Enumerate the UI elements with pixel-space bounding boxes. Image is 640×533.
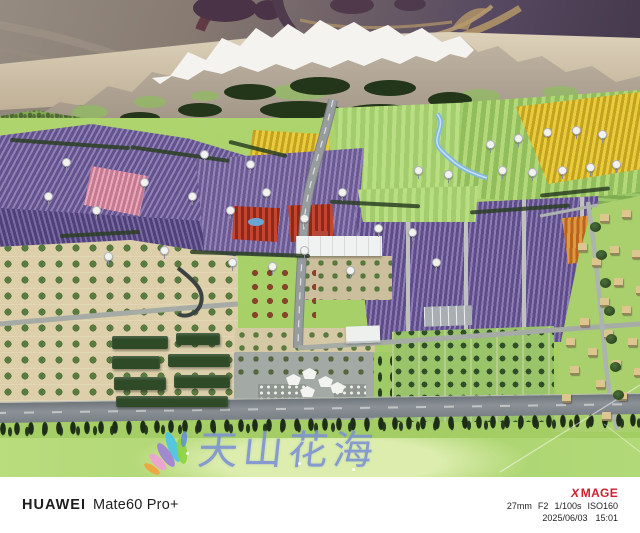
beehive-box (588, 348, 597, 357)
parasol-marker-icon (104, 252, 113, 261)
parasol-marker-icon (268, 262, 277, 271)
xmage-x-icon: X (570, 486, 581, 501)
beehive-box (578, 243, 587, 252)
shutter-speed: 1/100s (554, 501, 581, 511)
parasol-marker-icon (226, 206, 235, 215)
device-brand: HUAWEI (22, 497, 86, 513)
hedge-block (112, 356, 160, 369)
parasol-marker-icon (200, 150, 209, 159)
parasol-marker-icon (558, 166, 567, 175)
parasol-marker-icon (140, 178, 149, 187)
parasol-marker-icon (598, 130, 607, 139)
parasol-marker-icon (514, 134, 523, 143)
beehive-box (562, 394, 571, 403)
hedge-block (174, 375, 230, 388)
parasol-marker-icon (414, 166, 423, 175)
parasol-marker-icon (188, 192, 197, 201)
parasol-marker-icon (432, 258, 441, 267)
hedge-block (116, 396, 228, 407)
parasol-marker-icon (528, 168, 537, 177)
parasol-marker-icon (586, 163, 595, 172)
roadside-tree (596, 250, 607, 260)
support-wires (0, 0, 640, 477)
parasol-marker-icon (612, 160, 621, 169)
hedge-block (112, 336, 168, 349)
parasol-marker-icon (486, 140, 495, 149)
beehive-box (636, 286, 640, 295)
parasol-marker-icon (543, 128, 552, 137)
capture-datetime: 2025/06/0315:01 (501, 513, 618, 524)
roadside-tree (600, 278, 611, 288)
device-model: Mate60 Pro+ (93, 497, 179, 513)
roadside-tree (604, 306, 615, 316)
beehive-box (634, 368, 640, 377)
watermark-bar: HUAWEIMate60 Pro+ XMAGE 27mmF21/100sISO1… (0, 477, 640, 533)
parasol-marker-icon (346, 266, 355, 275)
aperture: F2 (538, 501, 549, 511)
beehive-box (602, 412, 611, 421)
beehive-box (622, 210, 631, 219)
capture-metadata: XMAGE 27mmF21/100sISO160 2025/06/0315:01 (501, 486, 618, 524)
hedge-block (168, 354, 230, 367)
parasol-marker-icon (444, 170, 453, 179)
beehive-box (600, 214, 609, 223)
parasol-marker-icon (44, 192, 53, 201)
beehive-box (566, 338, 575, 347)
roadside-tree (590, 222, 601, 232)
beehive-box (580, 318, 589, 327)
parasol-marker-icon (300, 246, 309, 255)
parasol-marker-icon (92, 206, 101, 215)
parasol-marker-icon (62, 158, 71, 167)
hedge-block (176, 333, 220, 345)
beehive-box (610, 246, 619, 255)
park-logo: 天山花海 (142, 427, 402, 477)
lawn-speck (186, 452, 189, 455)
parasol-marker-icon (408, 228, 417, 237)
beehive-box (570, 366, 579, 375)
parasol-marker-icon (374, 224, 383, 233)
xmage-logo: XMAGE (501, 486, 618, 501)
photo-canvas: 天山花海 HUAWEIMate60 Pro+ XMAGE 27mmF21/100… (0, 0, 640, 533)
lawn-speck (352, 468, 355, 471)
parasol-marker-icon (498, 166, 507, 175)
parasol-marker-icon (300, 214, 309, 223)
iso: ISO160 (587, 501, 618, 511)
parasol-marker-icon (338, 188, 347, 197)
beehive-box (596, 380, 605, 389)
beehive-box (622, 306, 631, 315)
hedge-block (114, 377, 166, 390)
parasol-marker-icon (262, 188, 271, 197)
beehive-box (614, 278, 623, 287)
xmage-text: MAGE (581, 486, 618, 500)
roadside-tree (613, 390, 624, 400)
diorama-scene: 天山花海 (0, 0, 640, 477)
roadside-tree (610, 362, 621, 372)
capture-date: 2025/06/03 (542, 513, 587, 523)
parasol-marker-icon (160, 246, 169, 255)
lawn-speck (298, 462, 301, 465)
capture-time: 15:01 (595, 513, 618, 523)
beehive-box (628, 338, 637, 347)
beehive-box (632, 250, 640, 259)
parasol-marker-icon (572, 126, 581, 135)
park-title: 天山花海 (196, 429, 381, 473)
device-watermark: HUAWEIMate60 Pro+ (22, 497, 179, 513)
parasol-marker-icon (228, 258, 237, 267)
roadside-tree (606, 334, 617, 344)
parasol-marker-icon (246, 160, 255, 169)
exif-info: 27mmF21/100sISO160 (501, 501, 618, 512)
focal-length: 27mm (507, 501, 532, 511)
